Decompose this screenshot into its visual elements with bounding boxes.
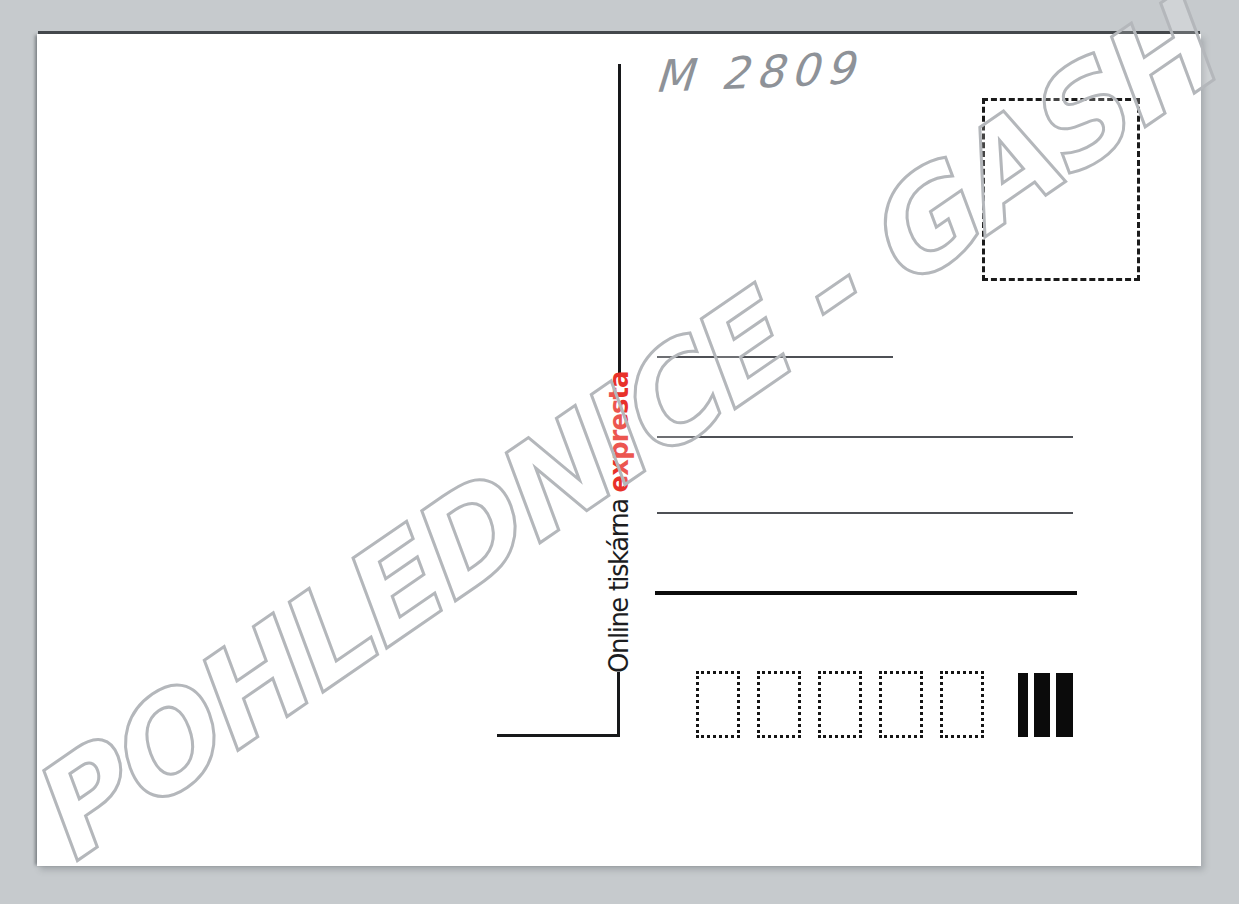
printer-credit: Online tiskárna expresta <box>599 373 639 673</box>
franking-bars <box>1018 673 1073 737</box>
franking-bar <box>1056 673 1073 737</box>
postal-code-box <box>940 671 984 738</box>
address-line-2 <box>657 436 1073 438</box>
postal-code-box <box>818 671 862 738</box>
address-line-1 <box>657 356 893 358</box>
postal-code-box <box>696 671 740 738</box>
postal-code-box <box>879 671 923 738</box>
stamp-box <box>982 98 1140 281</box>
printer-credit-text: Online tiskárna <box>604 492 634 673</box>
postal-code-box <box>757 671 801 738</box>
franking-bar <box>1018 673 1028 737</box>
center-divider-line <box>618 64 621 375</box>
corner-bracket-line <box>497 734 620 737</box>
postal-code-boxes <box>696 671 984 738</box>
address-line-3 <box>657 512 1073 514</box>
franking-bar <box>1034 673 1050 737</box>
photo-scene: M 2809 Online tiskárna expresta POHLEDNI… <box>0 0 1239 904</box>
printer-credit-brand: expresta <box>604 372 634 493</box>
divider-bottom-segment <box>617 672 620 737</box>
postcard-back: M 2809 Online tiskárna expresta <box>37 34 1201 866</box>
address-line-4-thick <box>655 591 1077 595</box>
handwritten-note: M 2809 <box>654 41 887 102</box>
